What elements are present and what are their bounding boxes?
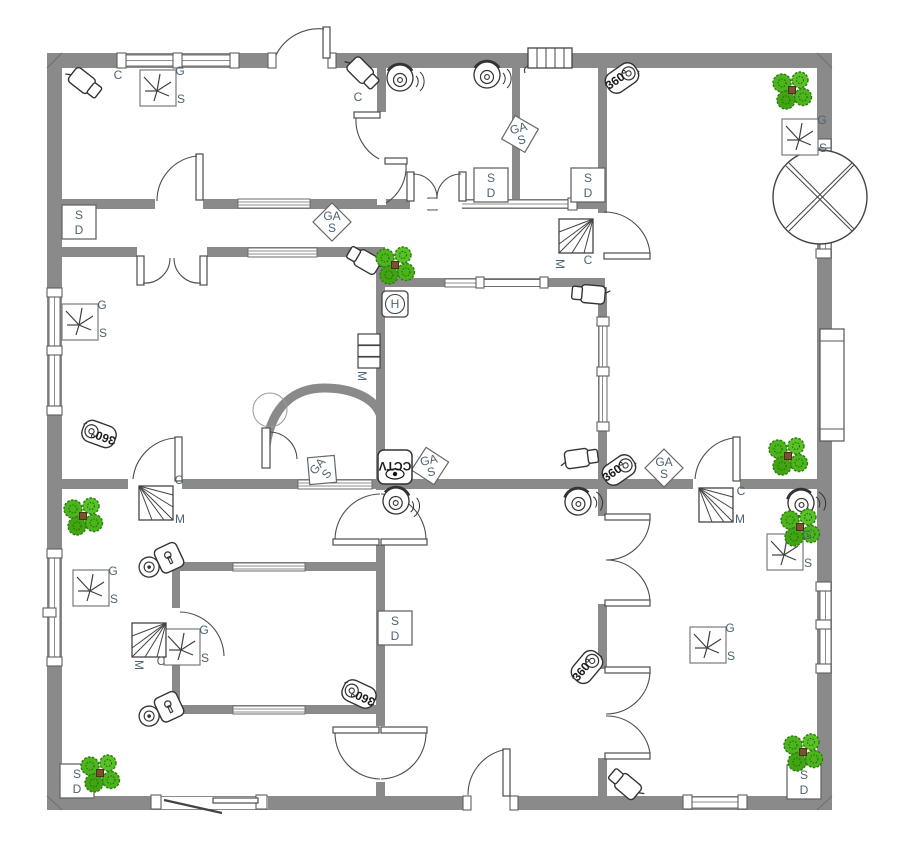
floor-plan-svg: SDSDSDSDSDSDGASGASGASGASGASHCCTV360°360°… <box>0 0 900 857</box>
motion-detector[interactable] <box>139 486 173 520</box>
door <box>598 212 650 259</box>
dome-camera-icon <box>381 486 421 518</box>
cctv-monitor[interactable]: CCTV <box>378 450 412 484</box>
ceiling-fixture-icon <box>773 150 867 244</box>
potted-plant-icon <box>769 438 808 475</box>
wall-grille-icon <box>524 48 572 73</box>
gs-sensor-label: G <box>199 623 208 637</box>
motion-detector-icon <box>139 486 173 520</box>
gs-sensor-label: G <box>108 564 117 578</box>
smoke-detector[interactable]: SD <box>571 168 605 202</box>
security-camera-label: C <box>354 90 363 104</box>
potted-plant-icon <box>784 734 823 771</box>
gs-sensor-label: G <box>97 298 106 312</box>
gs-sensor-label: S <box>177 92 185 106</box>
motion-detector-label: C <box>737 484 746 498</box>
security-camera-icon <box>63 63 104 101</box>
gs-sensor-label: S <box>201 651 209 665</box>
gs-sensor-label: S <box>110 592 118 606</box>
door <box>354 112 407 205</box>
smoke-detector-label: S <box>75 208 83 222</box>
smoke-detector[interactable]: SD <box>62 205 96 239</box>
double-door <box>598 514 650 606</box>
gs-sensor[interactable] <box>73 570 109 606</box>
door <box>155 154 203 209</box>
motion-detector[interactable] <box>132 623 166 657</box>
sliding-door <box>151 795 268 813</box>
interior-window <box>238 199 310 208</box>
motion-detector-label: M <box>132 660 146 670</box>
smoke-detector[interactable]: SD <box>378 611 412 645</box>
cctv-monitor-label: CCTV <box>379 459 412 473</box>
control-unit-icon <box>358 334 380 368</box>
gs-sensor[interactable] <box>62 304 98 340</box>
motion-detector-label: M <box>735 512 745 526</box>
window <box>683 795 747 809</box>
h-sensor[interactable]: H <box>382 291 408 317</box>
door <box>268 27 336 68</box>
motion-detector-label: M <box>175 512 185 526</box>
gs-sensor-icon <box>73 570 109 606</box>
security-camera[interactable] <box>63 63 104 101</box>
gs-sensor-icon <box>62 304 98 340</box>
motion-detector-label: C <box>175 473 184 487</box>
control-unit-label: M <box>355 371 369 381</box>
gs-sensor-icon <box>690 627 726 663</box>
potted-plant[interactable] <box>773 72 812 109</box>
door <box>693 437 740 489</box>
secure-camera-icon <box>135 690 186 732</box>
security-camera-label: C <box>114 68 123 82</box>
wall-grille[interactable] <box>524 48 572 73</box>
gs-sensor[interactable] <box>164 629 200 665</box>
motion-detector[interactable] <box>559 219 593 253</box>
secure-camera[interactable] <box>135 690 186 732</box>
gs-sensor-icon <box>140 70 176 106</box>
potted-plant[interactable] <box>784 734 823 771</box>
smoke-detector-label: D <box>584 186 593 200</box>
smoke-detector-label: D <box>800 783 809 797</box>
dome-camera[interactable] <box>381 486 421 518</box>
smoke-detector-label: S <box>584 171 592 185</box>
potted-plant-icon <box>773 72 812 109</box>
bay-window <box>820 329 844 441</box>
smoke-detector-label: S <box>487 171 495 185</box>
smoke-detector-label: S <box>73 767 81 781</box>
smoke-detector-label: D <box>75 223 84 237</box>
gs-sensor[interactable] <box>690 627 726 663</box>
interior-window <box>597 317 609 431</box>
motion-detector-icon <box>699 488 733 522</box>
gas-detector-label: S <box>328 221 336 235</box>
doors <box>128 27 740 813</box>
control-unit[interactable] <box>358 334 380 368</box>
floor-plan-canvas: SDSDSDSDSDSDGASGASGASGASGASHCCTV360°360°… <box>0 0 900 857</box>
motion-detector-icon <box>132 623 166 657</box>
potted-plant-icon <box>376 247 415 284</box>
gas-detector-label: S <box>660 467 668 481</box>
smoke-detector[interactable]: SD <box>787 765 821 799</box>
gs-sensor-label: G <box>175 64 184 78</box>
device-labels: GSGSGSGSGSGSGSMCCMCMMCMCC <box>97 64 827 670</box>
smoke-detector-label: D <box>391 629 400 643</box>
gs-sensor-label: S <box>727 649 735 663</box>
door <box>463 749 518 810</box>
interior-window <box>233 706 305 714</box>
gs-sensor-label: S <box>819 141 827 155</box>
smoke-detector-label: D <box>73 782 82 796</box>
double-door <box>598 667 650 759</box>
camera-360[interactable]: 360° <box>78 418 119 451</box>
double-swing-door <box>333 726 427 782</box>
security-camera-icon <box>559 447 599 470</box>
potted-plant-icon <box>64 498 103 535</box>
gs-sensor[interactable] <box>782 119 818 155</box>
potted-plant[interactable] <box>376 247 415 284</box>
dome-camera[interactable] <box>387 64 424 91</box>
security-camera[interactable] <box>559 447 599 470</box>
motion-detector-icon <box>559 219 593 253</box>
curved-wall <box>266 388 380 446</box>
double-door <box>137 247 207 285</box>
devices: SDSDSDSDSDSDGASGASGASGASGASHCCTV360°360°… <box>60 48 867 804</box>
smoke-detector[interactable]: SD <box>474 168 508 202</box>
interior-window <box>248 248 317 257</box>
dome-camera-icon <box>387 64 424 91</box>
interior-window <box>233 563 305 571</box>
gs-sensor-label: S <box>99 326 107 340</box>
double-door <box>407 172 466 209</box>
double-swing-door <box>333 490 427 545</box>
smoke-detector-label: S <box>391 614 399 628</box>
gs-sensor-label: S <box>804 556 812 570</box>
gs-sensor-label: G <box>802 528 811 542</box>
window <box>43 549 62 666</box>
gs-sensor-label: G <box>817 113 826 127</box>
motion-detector-label: M <box>553 259 567 269</box>
motion-detector-label: C <box>584 253 593 267</box>
gs-sensor-label: G <box>725 621 734 635</box>
potted-plant[interactable] <box>769 438 808 475</box>
h-sensor-label: H <box>391 297 400 311</box>
potted-plant-icon <box>81 755 120 792</box>
gs-sensor-icon <box>164 629 200 665</box>
motion-detector[interactable] <box>699 488 733 522</box>
window <box>47 288 62 415</box>
arch-door <box>253 393 297 468</box>
gs-sensor[interactable] <box>140 70 176 106</box>
motion-detector-label: C <box>157 654 166 668</box>
ceiling-fixture[interactable] <box>773 150 867 244</box>
potted-plant[interactable] <box>64 498 103 535</box>
smoke-detector-label: D <box>487 186 496 200</box>
gs-sensor-icon <box>782 119 818 155</box>
potted-plant[interactable] <box>81 755 120 792</box>
